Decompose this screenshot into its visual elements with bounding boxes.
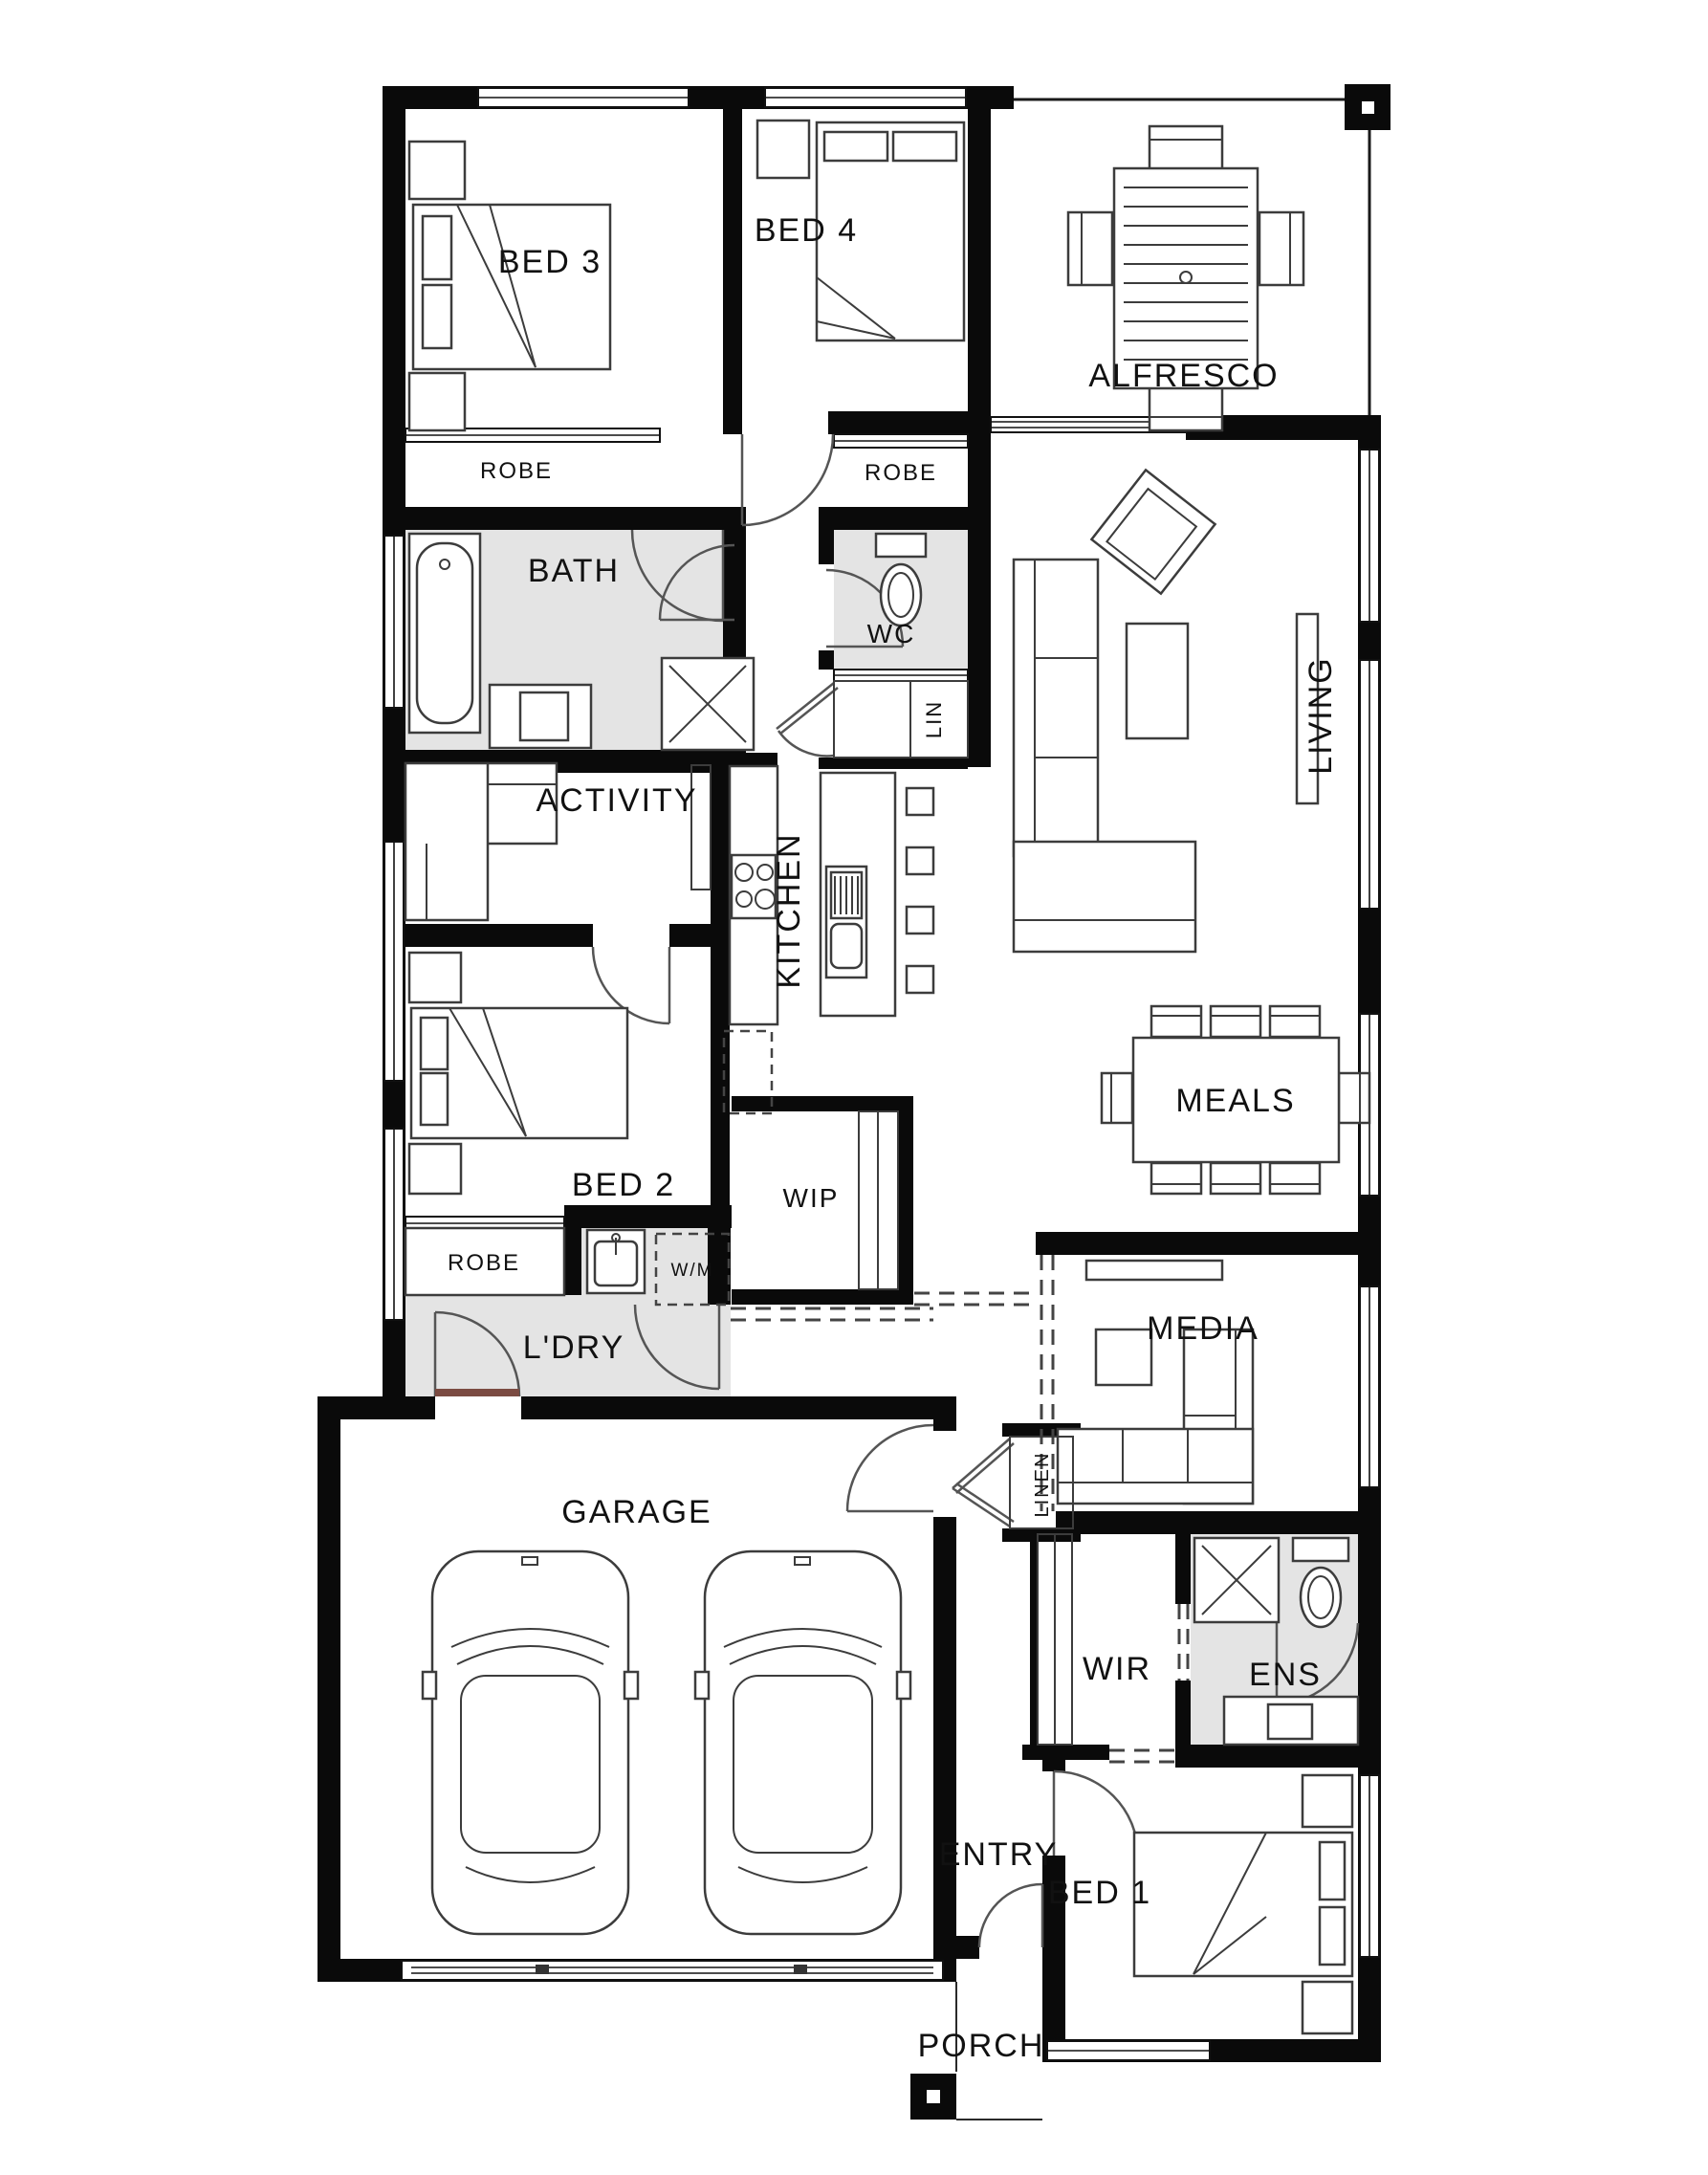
nightstand-icon <box>1303 1982 1352 2033</box>
media-furniture <box>1058 1261 1253 1504</box>
room-label-living: LIVING <box>1303 656 1339 774</box>
stool-icon <box>907 907 933 934</box>
dining-chair-icon <box>1211 1163 1260 1194</box>
room-label-meals: MEALS <box>1175 1083 1295 1119</box>
pillow-icon <box>893 132 956 161</box>
cooktop-icon <box>732 855 776 918</box>
sink-icon <box>826 867 866 978</box>
room-label-bed3: BED 3 <box>498 244 602 280</box>
garage-cars <box>423 1551 910 1934</box>
room-label-robe-bed3: ROBE <box>480 458 553 484</box>
room-label-robe-bed4: ROBE <box>865 460 937 486</box>
living-furniture <box>1014 470 1318 952</box>
room-label-wip: WIP <box>783 1183 840 1213</box>
laundry-trough-icon <box>587 1230 645 1293</box>
wc-toilet <box>876 534 926 626</box>
garage-door <box>402 1961 943 1980</box>
dining-chair-icon <box>1270 1006 1320 1037</box>
nightstand-icon <box>409 953 461 1002</box>
room-label-robe-bed2: ROBE <box>448 1250 520 1276</box>
room-label-linen: LINEN <box>1032 1452 1053 1518</box>
room-label-garage: GARAGE <box>561 1494 712 1530</box>
tv-unit-icon <box>1086 1261 1222 1280</box>
nightstand-icon <box>409 1144 461 1194</box>
car-icon <box>423 1551 638 1934</box>
armchair-icon <box>1091 470 1215 593</box>
room-label-entry: ENTRY <box>939 1836 1059 1873</box>
nightstand-icon <box>409 142 465 199</box>
activity-sofa <box>405 763 557 920</box>
wip-shelf <box>859 1111 898 1289</box>
wir-shelf <box>1038 1534 1072 1745</box>
outdoor-chair-icon <box>1259 212 1303 285</box>
coffee-table-icon <box>1096 1329 1151 1385</box>
room-label-wc: WC <box>867 619 916 648</box>
label-wm: W/M <box>670 1261 713 1281</box>
bed3-furniture <box>409 142 610 430</box>
outdoor-chair-icon <box>1150 126 1222 170</box>
island-bench <box>821 773 933 1016</box>
outdoor-chair-icon <box>1068 212 1112 285</box>
room-label-kitchen: KITCHEN <box>771 832 807 988</box>
pillow-icon <box>423 285 451 348</box>
bed1-furniture <box>1134 1775 1352 2033</box>
dining-chair-icon <box>1211 1006 1260 1037</box>
bed1-door <box>1054 1771 1138 1856</box>
outdoor-table-icon <box>1114 168 1258 388</box>
front-door <box>979 1884 1042 1947</box>
pillow-icon <box>824 132 887 161</box>
pillow-icon <box>1320 1907 1345 1965</box>
dining-chair-icon <box>1102 1073 1132 1123</box>
floor-plan-drawing: BED 3 BED 4 ALFRESCO ROBE ROBE BATH WC L… <box>0 0 1708 2175</box>
room-label-ens: ENS <box>1249 1657 1322 1693</box>
stool-icon <box>907 788 933 815</box>
sofa-icon <box>1014 560 1098 856</box>
toilet-cistern <box>876 534 926 557</box>
room-label-activity: ACTIVITY <box>536 782 697 819</box>
shower-icon <box>1194 1538 1279 1622</box>
room-label-bed1: BED 1 <box>1048 1875 1151 1911</box>
room-label-alfresco: ALFRESCO <box>1088 358 1279 394</box>
room-label-lin: LIN <box>922 700 946 738</box>
pillow-icon <box>421 1018 448 1069</box>
stool-icon <box>907 966 933 993</box>
bed2-furniture <box>409 953 627 1194</box>
lin-closet <box>834 681 968 758</box>
sofa-chaise-icon <box>1014 842 1195 952</box>
room-label-porch: PORCH <box>918 2028 1045 2064</box>
bathtub-inner <box>417 543 472 723</box>
pillow-icon <box>421 1073 448 1125</box>
sofa-icon <box>1058 1429 1253 1504</box>
basin-icon <box>520 692 568 740</box>
dining-chair-icon <box>1270 1163 1320 1194</box>
vanity-icon <box>1224 1697 1358 1745</box>
dining-chair-icon <box>1151 1006 1201 1037</box>
room-label-wir: WIR <box>1083 1651 1151 1687</box>
room-label-media: MEDIA <box>1147 1310 1259 1347</box>
sofa-icon <box>405 763 488 920</box>
lin-doors <box>777 683 838 756</box>
room-label-bed4: BED 4 <box>755 212 858 249</box>
nightstand-icon <box>757 121 809 178</box>
garage-entry-door <box>847 1425 933 1511</box>
car-icon <box>695 1551 910 1934</box>
room-label-bed2: BED 2 <box>572 1167 675 1203</box>
nightstand-icon <box>1303 1775 1352 1827</box>
nightstand-icon <box>409 373 465 430</box>
coffee-table-icon <box>1127 624 1188 738</box>
dining-chair-icon <box>1151 1163 1201 1194</box>
stool-icon <box>907 847 933 874</box>
pillow-icon <box>423 216 451 279</box>
shower-icon <box>662 658 754 750</box>
floor-plan-page: BED 3 BED 4 ALFRESCO ROBE ROBE BATH WC L… <box>0 0 1708 2175</box>
dining-chair-icon <box>1339 1073 1369 1123</box>
room-label-bath: BATH <box>528 553 620 589</box>
room-label-ldry: L'DRY <box>523 1329 625 1366</box>
pillow-icon <box>1320 1842 1345 1900</box>
linen-doors <box>953 1439 1014 1527</box>
